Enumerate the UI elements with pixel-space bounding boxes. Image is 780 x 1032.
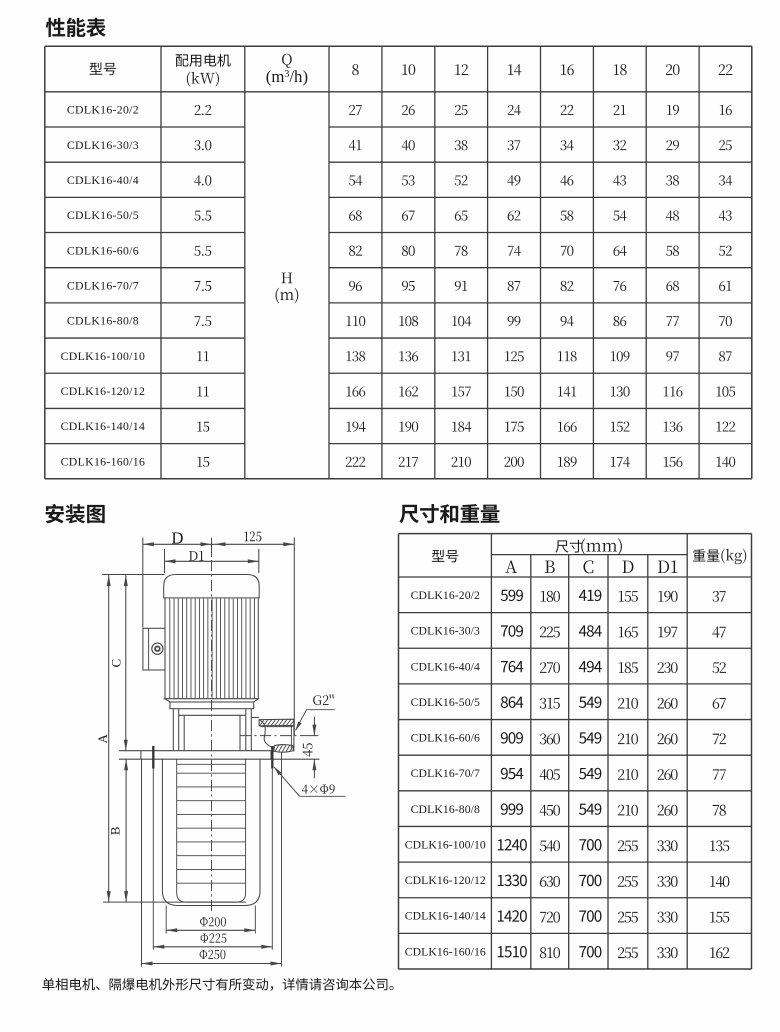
svg-text:D: D xyxy=(172,528,184,547)
svg-text:CDLK16-100/10: CDLK16-100/10 xyxy=(405,838,486,851)
svg-text:CDLK16-20/2: CDLK16-20/2 xyxy=(411,589,480,602)
svg-text:CDLK16-60/6: CDLK16-60/6 xyxy=(67,243,139,257)
svg-text:CDLK16-80/8: CDLK16-80/8 xyxy=(411,803,480,816)
svg-text:CDLK16-70/7: CDLK16-70/7 xyxy=(67,279,139,293)
svg-text:CDLK16-80/8: CDLK16-80/8 xyxy=(67,314,139,328)
svg-text:C: C xyxy=(110,659,124,668)
svg-text:CDLK16-40/4: CDLK16-40/4 xyxy=(67,173,139,187)
svg-text:CDLK16-70/7: CDLK16-70/7 xyxy=(411,767,480,780)
svg-text:CDLK16-160/16: CDLK16-160/16 xyxy=(405,945,486,958)
svg-text:CDLK16-60/6: CDLK16-60/6 xyxy=(411,732,480,745)
svg-text:A: A xyxy=(96,733,110,743)
svg-text:CDLK16-120/12: CDLK16-120/12 xyxy=(405,874,486,887)
svg-text:B: B xyxy=(109,827,123,836)
svg-text:CDLK16-160/16: CDLK16-160/16 xyxy=(61,454,146,468)
svg-text:CDLK16-20/2: CDLK16-20/2 xyxy=(67,103,139,117)
svg-text:CDLK16-100/10: CDLK16-100/10 xyxy=(61,349,146,363)
svg-text:CDLK16-120/12: CDLK16-120/12 xyxy=(61,384,146,398)
svg-text:CDLK16-30/3: CDLK16-30/3 xyxy=(411,625,480,638)
svg-text:CDLK16-140/14: CDLK16-140/14 xyxy=(405,910,486,923)
svg-text:CDLK16-30/3: CDLK16-30/3 xyxy=(67,138,139,152)
svg-text:CDLK16-50/5: CDLK16-50/5 xyxy=(411,696,480,709)
svg-text:CDLK16-140/14: CDLK16-140/14 xyxy=(61,419,146,433)
svg-text:CDLK16-50/5: CDLK16-50/5 xyxy=(67,208,139,222)
svg-text:CDLK16-40/4: CDLK16-40/4 xyxy=(411,660,480,673)
